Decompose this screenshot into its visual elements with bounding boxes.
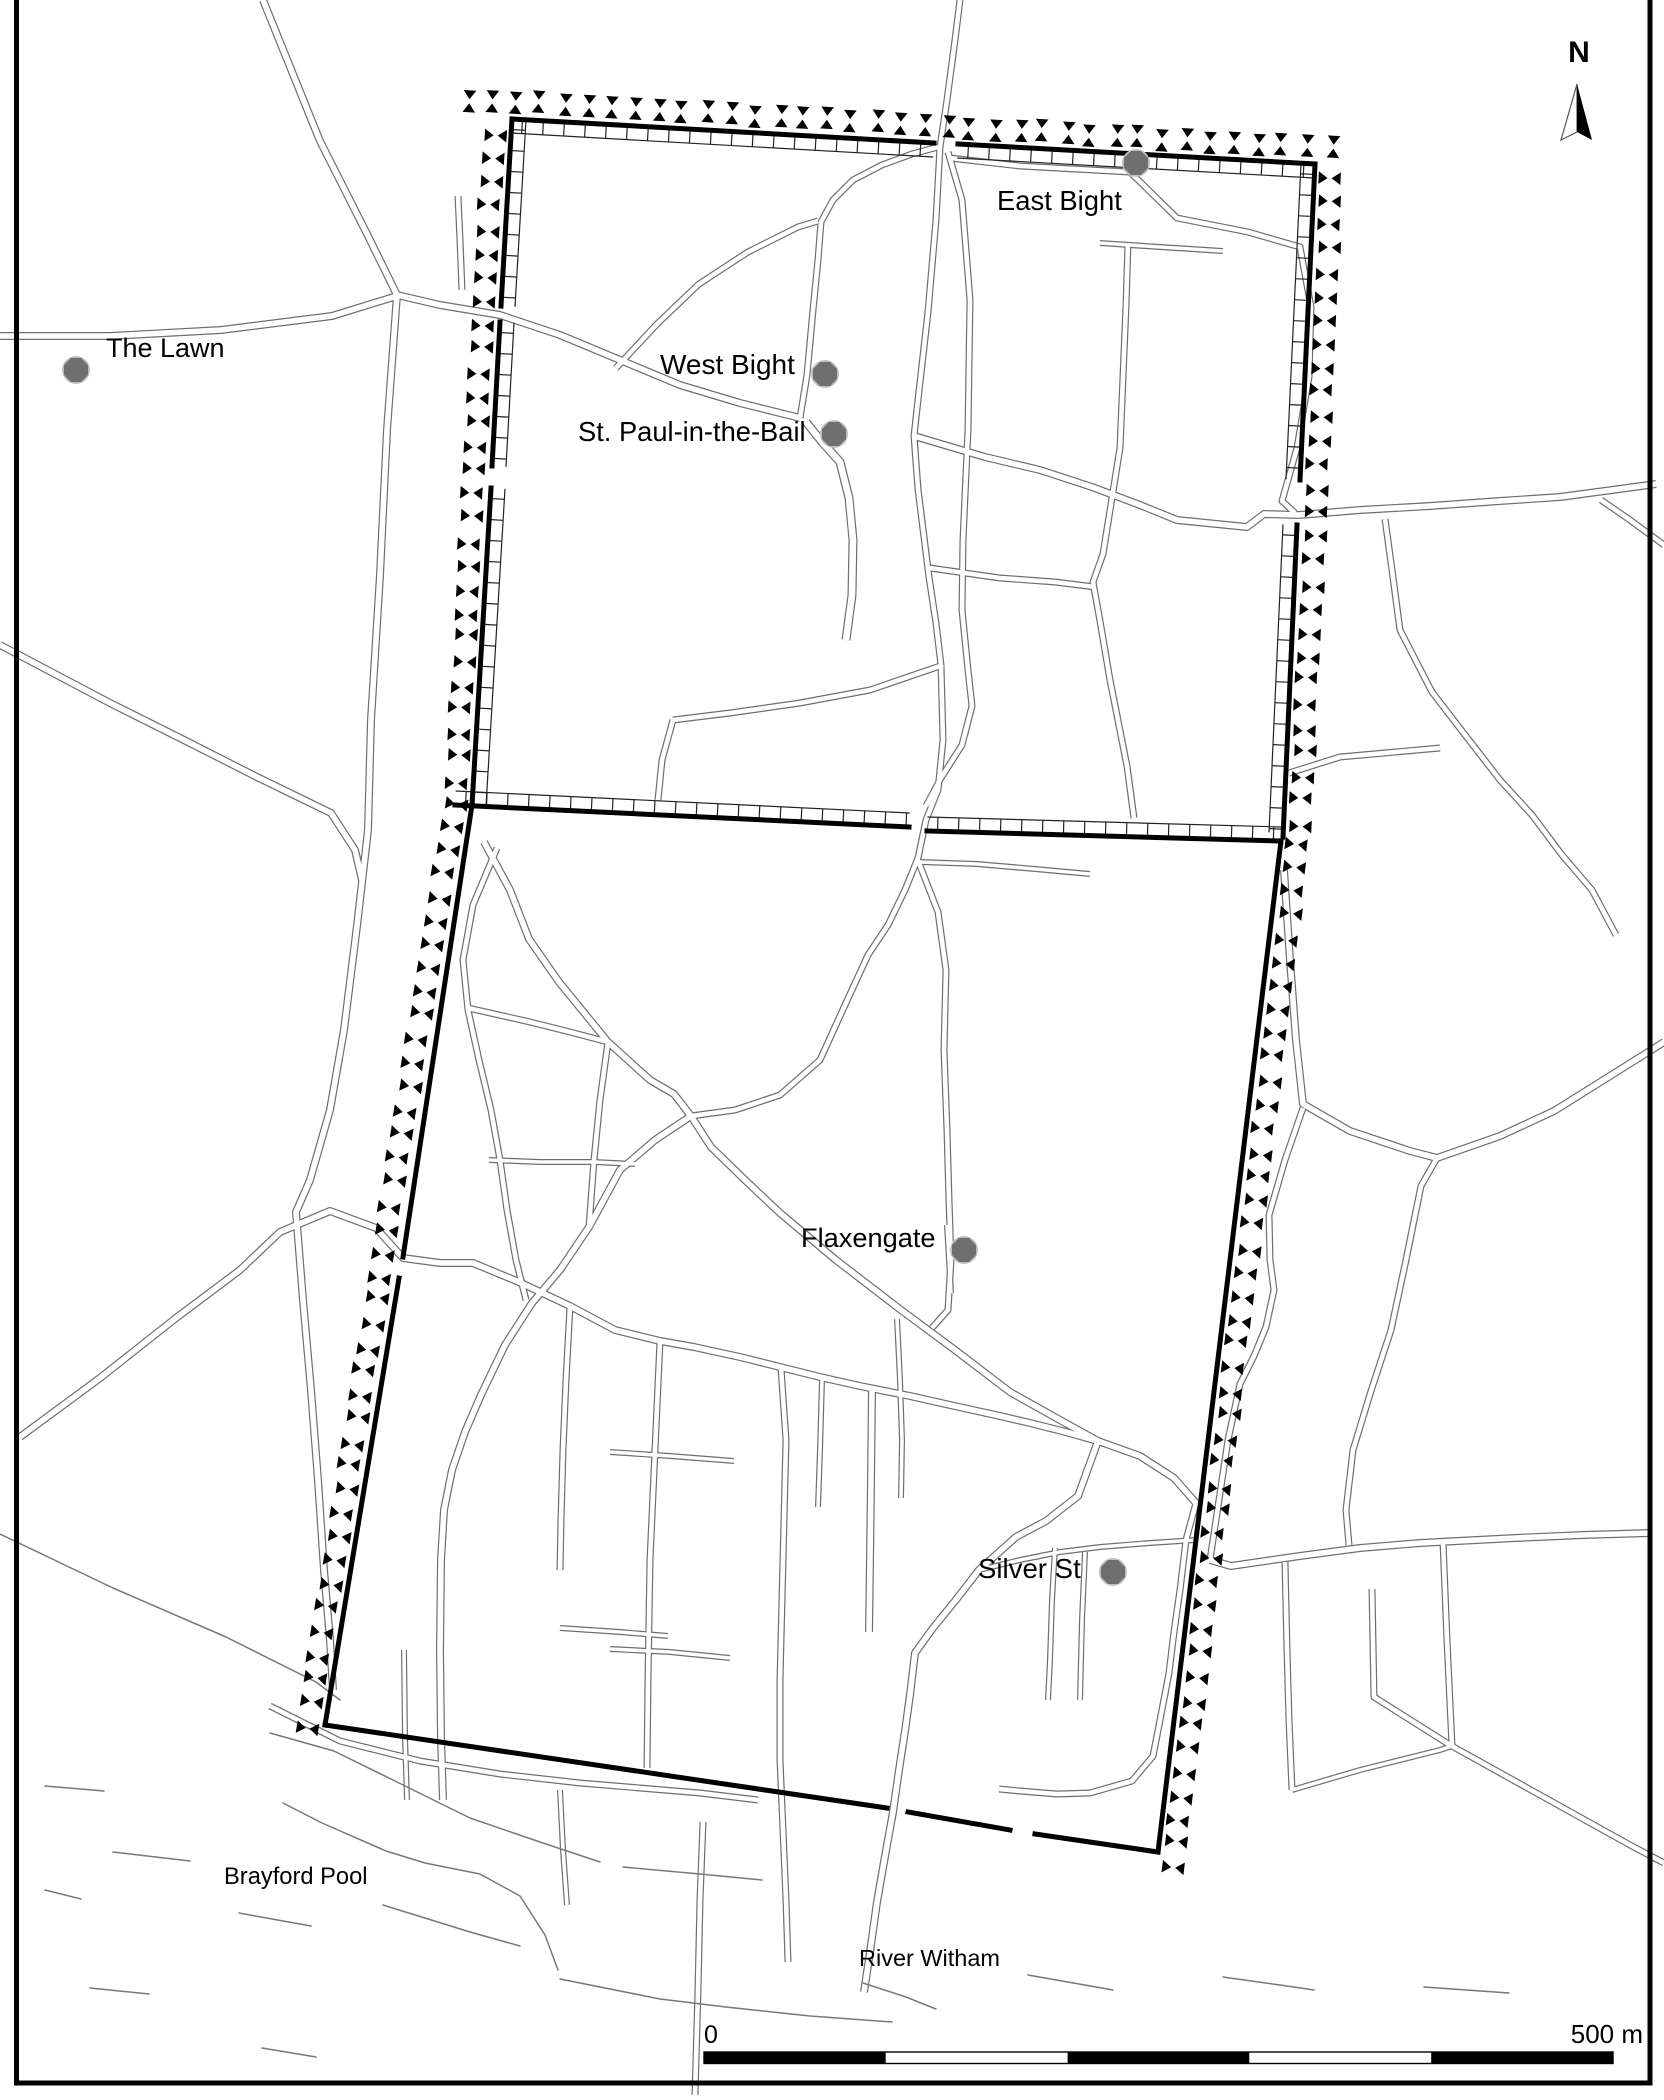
svg-text:0: 0 xyxy=(704,2021,718,2049)
svg-text:Brayford Pool: Brayford Pool xyxy=(224,1864,368,1890)
svg-text:River Witham: River Witham xyxy=(859,1945,1000,1971)
svg-text:The Lawn: The Lawn xyxy=(106,333,225,363)
svg-text:500 m: 500 m xyxy=(1571,2019,1643,2049)
svg-text:St. Paul-in-the-Bail: St. Paul-in-the-Bail xyxy=(578,416,806,447)
svg-text:Flaxengate: Flaxengate xyxy=(801,1222,936,1253)
svg-text:East Bight: East Bight xyxy=(997,185,1122,216)
svg-text:West Bight: West Bight xyxy=(660,349,795,380)
svg-text:N: N xyxy=(1568,36,1590,69)
svg-text:Silver St: Silver St xyxy=(978,1553,1081,1584)
